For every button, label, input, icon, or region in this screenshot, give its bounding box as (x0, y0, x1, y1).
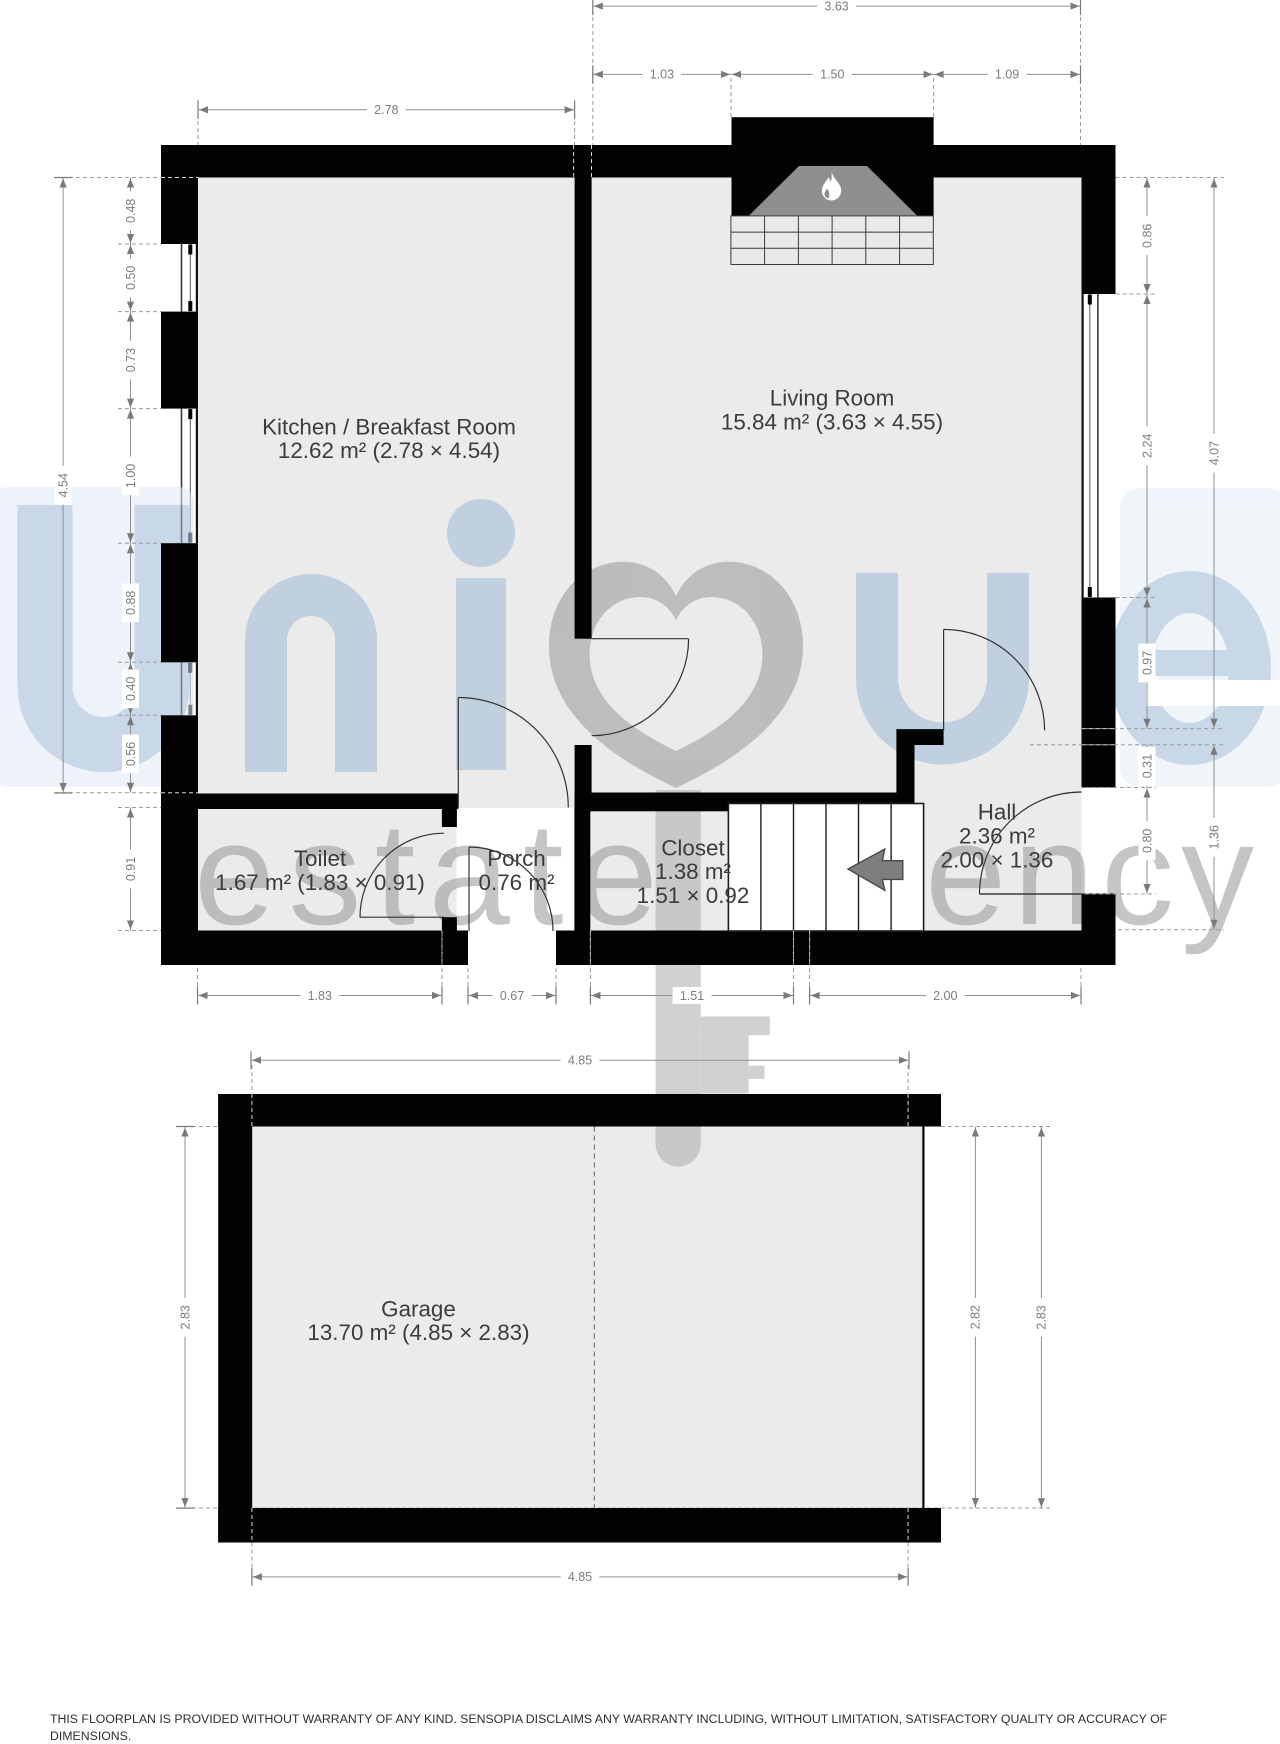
svg-text:0.50: 0.50 (124, 266, 138, 290)
svg-text:0.76 m²: 0.76 m² (479, 870, 555, 895)
svg-text:1.09: 1.09 (995, 68, 1019, 82)
svg-text:0.48: 0.48 (124, 199, 138, 223)
svg-text:1.83: 1.83 (308, 989, 332, 1003)
svg-text:Kitchen / Breakfast Room: Kitchen / Breakfast Room (262, 414, 516, 439)
svg-text:Closet: Closet (661, 835, 725, 860)
svg-text:2.24: 2.24 (1140, 434, 1154, 458)
svg-text:0.56: 0.56 (124, 742, 138, 766)
svg-text:Hall: Hall (978, 800, 1017, 825)
svg-text:0.67: 0.67 (500, 989, 524, 1003)
svg-text:0.80: 0.80 (1140, 829, 1154, 853)
svg-text:4.85: 4.85 (568, 1054, 592, 1068)
svg-text:0.91: 0.91 (124, 857, 138, 881)
svg-text:2.00: 2.00 (933, 989, 957, 1003)
svg-text:0.40: 0.40 (124, 677, 138, 701)
svg-text:1.03: 1.03 (650, 68, 674, 82)
svg-text:0.86: 0.86 (1140, 224, 1154, 248)
svg-text:0.31: 0.31 (1140, 754, 1154, 778)
svg-text:Garage: Garage (381, 1296, 456, 1321)
svg-text:2.83: 2.83 (1035, 1305, 1049, 1329)
svg-text:2.36 m²: 2.36 m² (959, 824, 1035, 849)
svg-text:DIMENSIONS.: DIMENSIONS. (50, 1729, 131, 1743)
svg-text:1.00: 1.00 (124, 464, 138, 488)
svg-text:Porch: Porch (487, 846, 546, 871)
svg-text:4.85: 4.85 (568, 1570, 592, 1584)
svg-text:2.83: 2.83 (178, 1305, 192, 1329)
svg-text:2.82: 2.82 (969, 1305, 983, 1329)
svg-text:12.62 m² (2.78 × 4.54): 12.62 m² (2.78 × 4.54) (278, 438, 500, 463)
svg-text:THIS FLOORPLAN IS PROVIDED WIT: THIS FLOORPLAN IS PROVIDED WITHOUT WARRA… (50, 1712, 1168, 1726)
svg-text:1.50: 1.50 (820, 68, 844, 82)
svg-text:Living Room: Living Room (770, 386, 894, 411)
svg-text:1.67 m² (1.83 × 0.91): 1.67 m² (1.83 × 0.91) (215, 870, 425, 895)
svg-text:4.54: 4.54 (56, 473, 70, 497)
svg-text:1.51: 1.51 (680, 989, 704, 1003)
svg-text:3.63: 3.63 (824, 0, 848, 13)
svg-text:4.07: 4.07 (1207, 441, 1221, 465)
svg-text:0.97: 0.97 (1140, 651, 1154, 675)
svg-text:15.84 m² (3.63 × 4.55): 15.84 m² (3.63 × 4.55) (721, 409, 943, 434)
svg-text:0.88: 0.88 (124, 591, 138, 615)
svg-text:1.51 × 0.92: 1.51 × 0.92 (637, 883, 750, 908)
svg-text:1.38 m²: 1.38 m² (655, 859, 731, 884)
svg-text:2.78: 2.78 (374, 103, 398, 117)
svg-text:0.73: 0.73 (124, 348, 138, 372)
svg-text:1.36: 1.36 (1207, 825, 1221, 849)
svg-text:2.00 × 1.36: 2.00 × 1.36 (941, 847, 1054, 872)
svg-text:13.70 m² (4.85 × 2.83): 13.70 m² (4.85 × 2.83) (307, 1320, 529, 1345)
svg-text:Toilet: Toilet (294, 846, 347, 871)
